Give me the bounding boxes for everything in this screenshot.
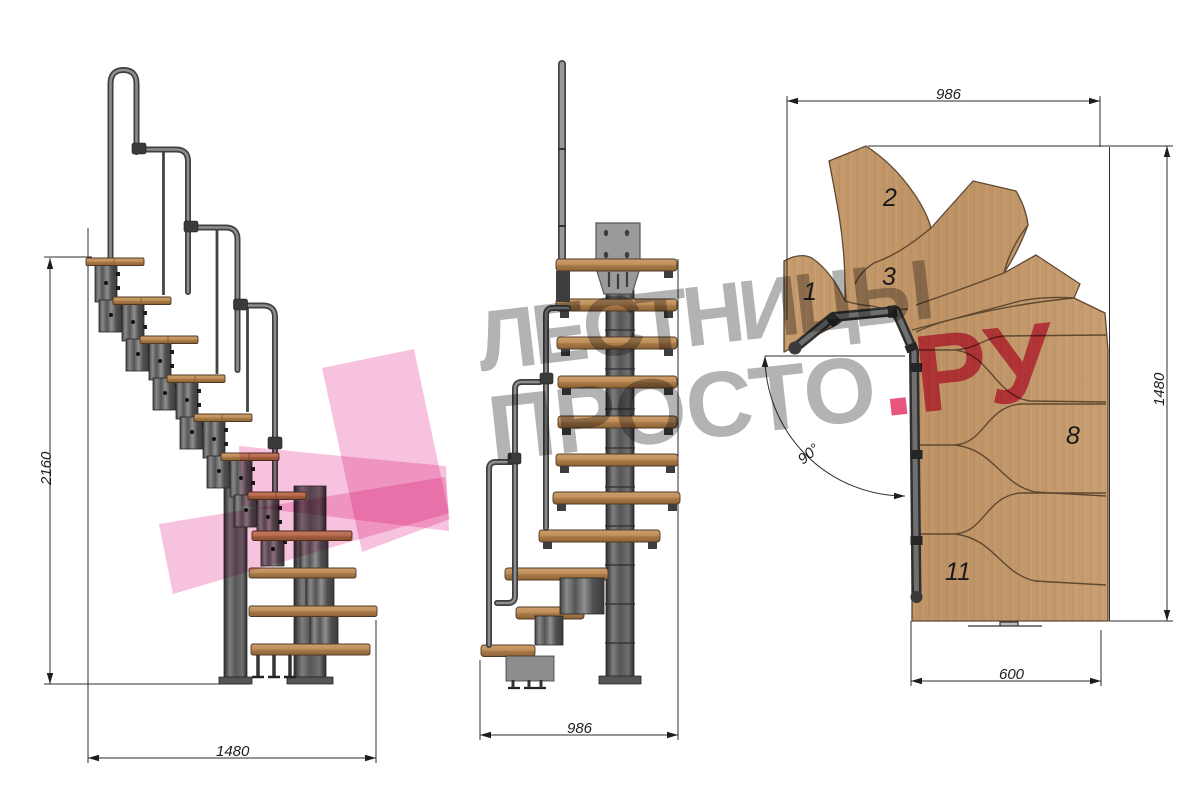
svg-text:986: 986 [567, 720, 593, 737]
svg-text:8: 8 [1066, 422, 1080, 450]
svg-text:2160: 2160 [38, 451, 55, 486]
svg-text:600: 600 [999, 666, 1025, 683]
svg-text:1480: 1480 [1151, 372, 1168, 406]
svg-text:2: 2 [882, 184, 897, 212]
svg-text:986: 986 [936, 86, 962, 103]
svg-text:11: 11 [945, 558, 971, 586]
svg-text:1480: 1480 [216, 743, 250, 760]
